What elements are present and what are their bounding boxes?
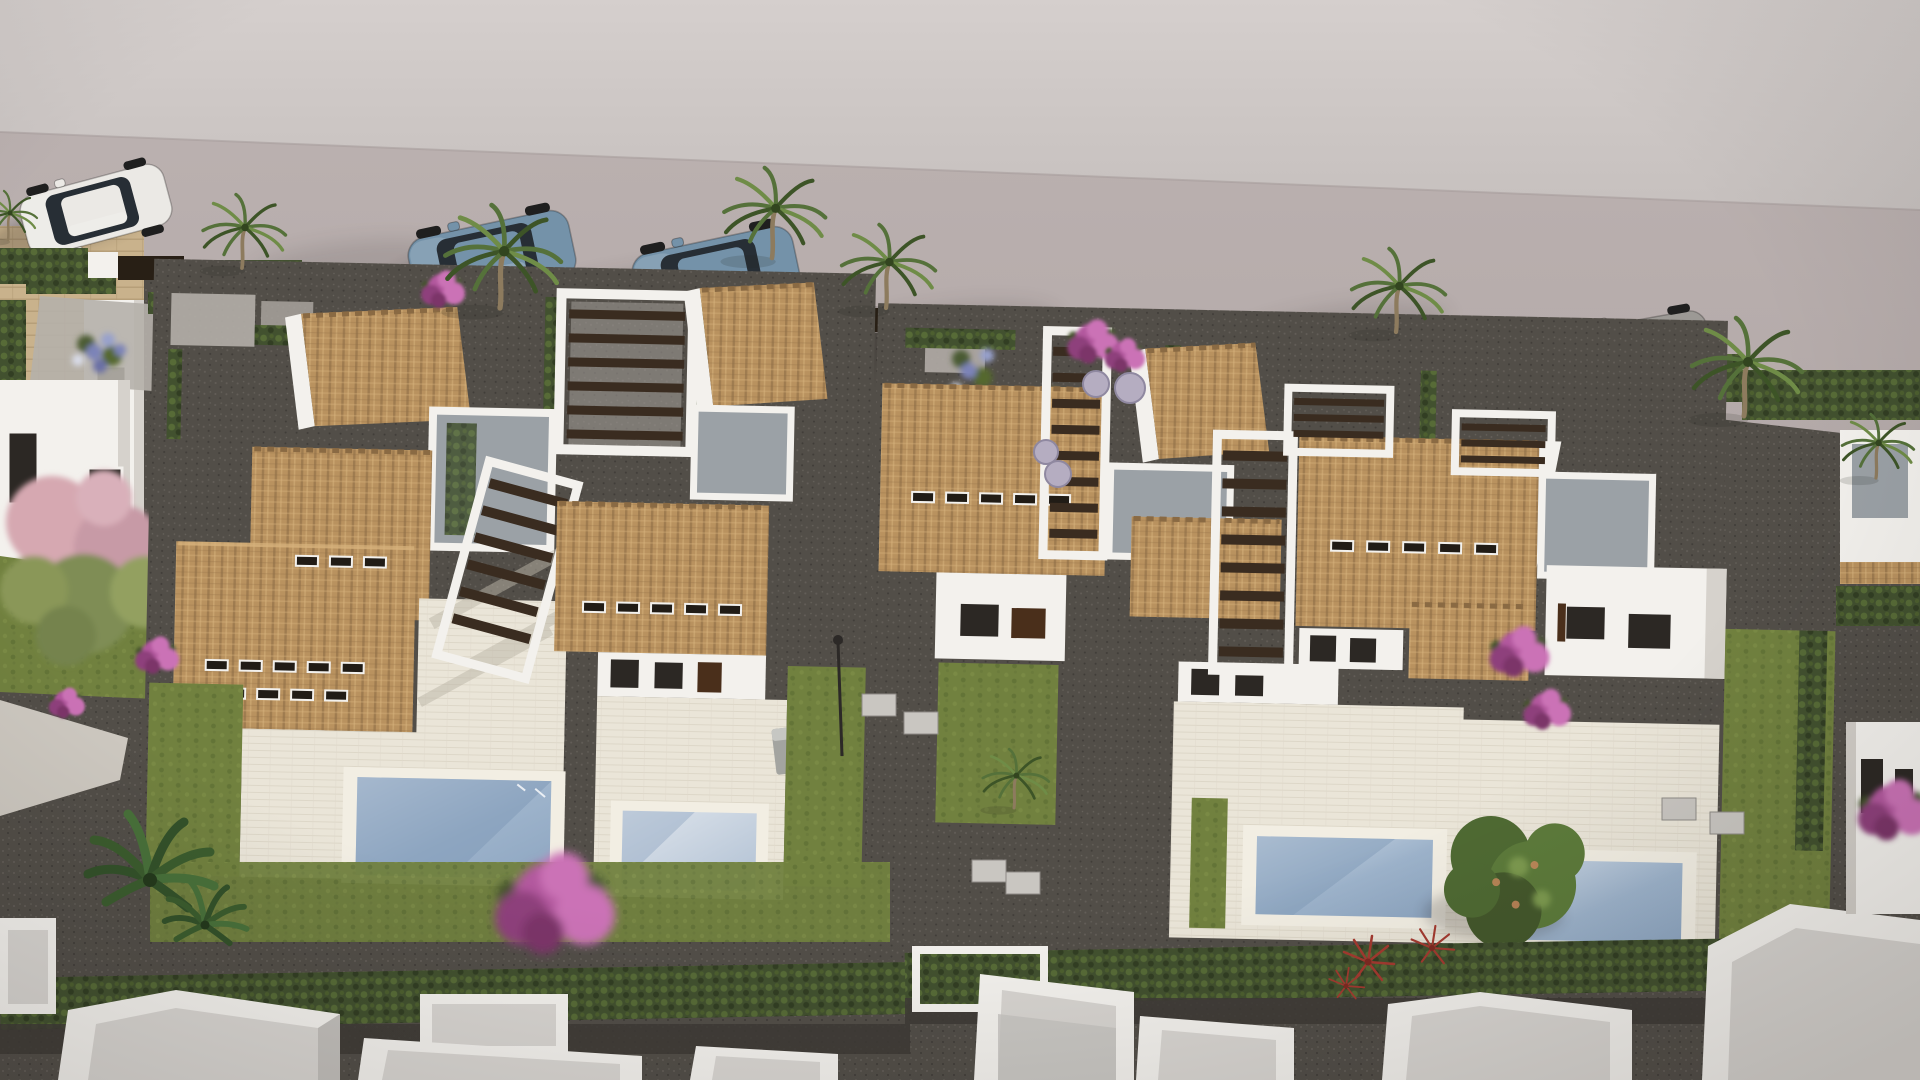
render-viewport bbox=[0, 0, 1920, 1080]
scene-svg bbox=[0, 0, 1920, 1080]
vignette bbox=[0, 0, 1920, 1080]
